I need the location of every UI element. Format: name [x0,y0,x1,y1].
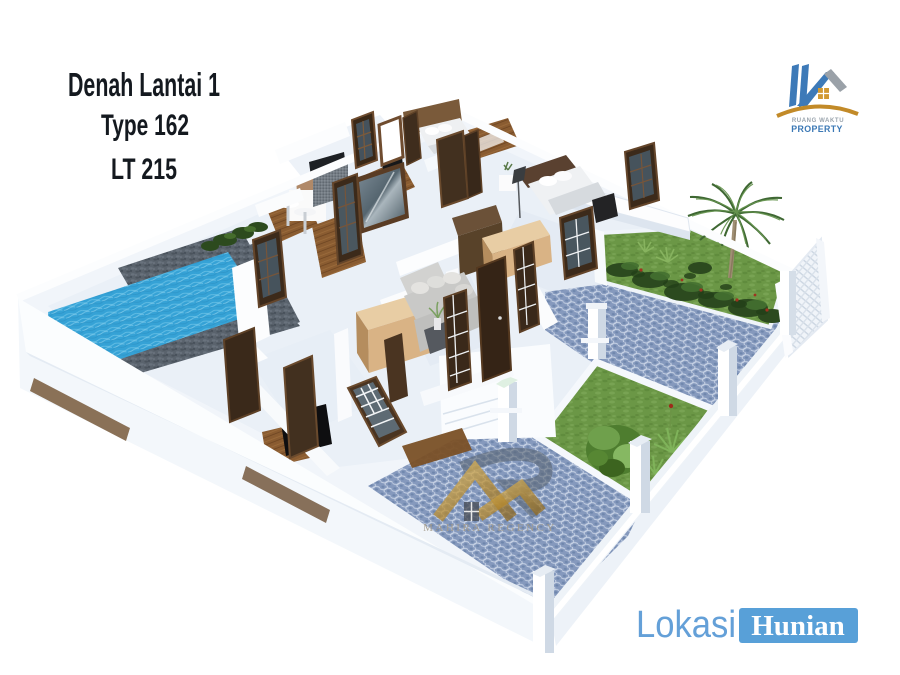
svg-text:Lokasi: Lokasi [636,604,736,646]
svg-text:Denah Lantai 1: Denah Lantai 1 [68,66,220,103]
svg-text:MAHIRA REGENCY: MAHIRA REGENCY [423,522,557,534]
svg-text:LT 215: LT 215 [111,153,177,186]
svg-text:Type 162: Type 162 [101,109,189,142]
svg-text:Hunian: Hunian [751,610,845,642]
svg-text:PROPERTY: PROPERTY [791,124,843,134]
